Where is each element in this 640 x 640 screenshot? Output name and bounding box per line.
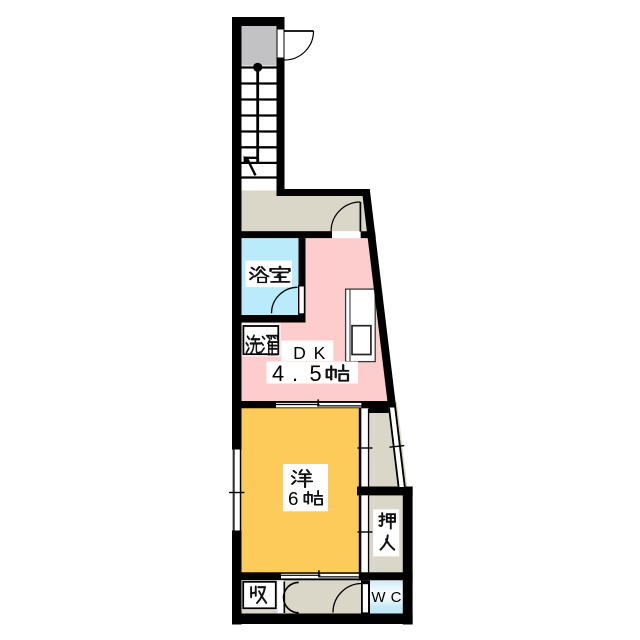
svg-text:4: 4 [272, 361, 284, 386]
svg-text:5: 5 [309, 361, 321, 386]
svg-text:.: . [292, 361, 298, 386]
svg-text:C: C [391, 589, 402, 606]
svg-text:6: 6 [288, 488, 298, 509]
svg-text:W: W [371, 589, 386, 606]
svg-text:K: K [314, 343, 326, 363]
svg-text:D: D [293, 343, 306, 363]
